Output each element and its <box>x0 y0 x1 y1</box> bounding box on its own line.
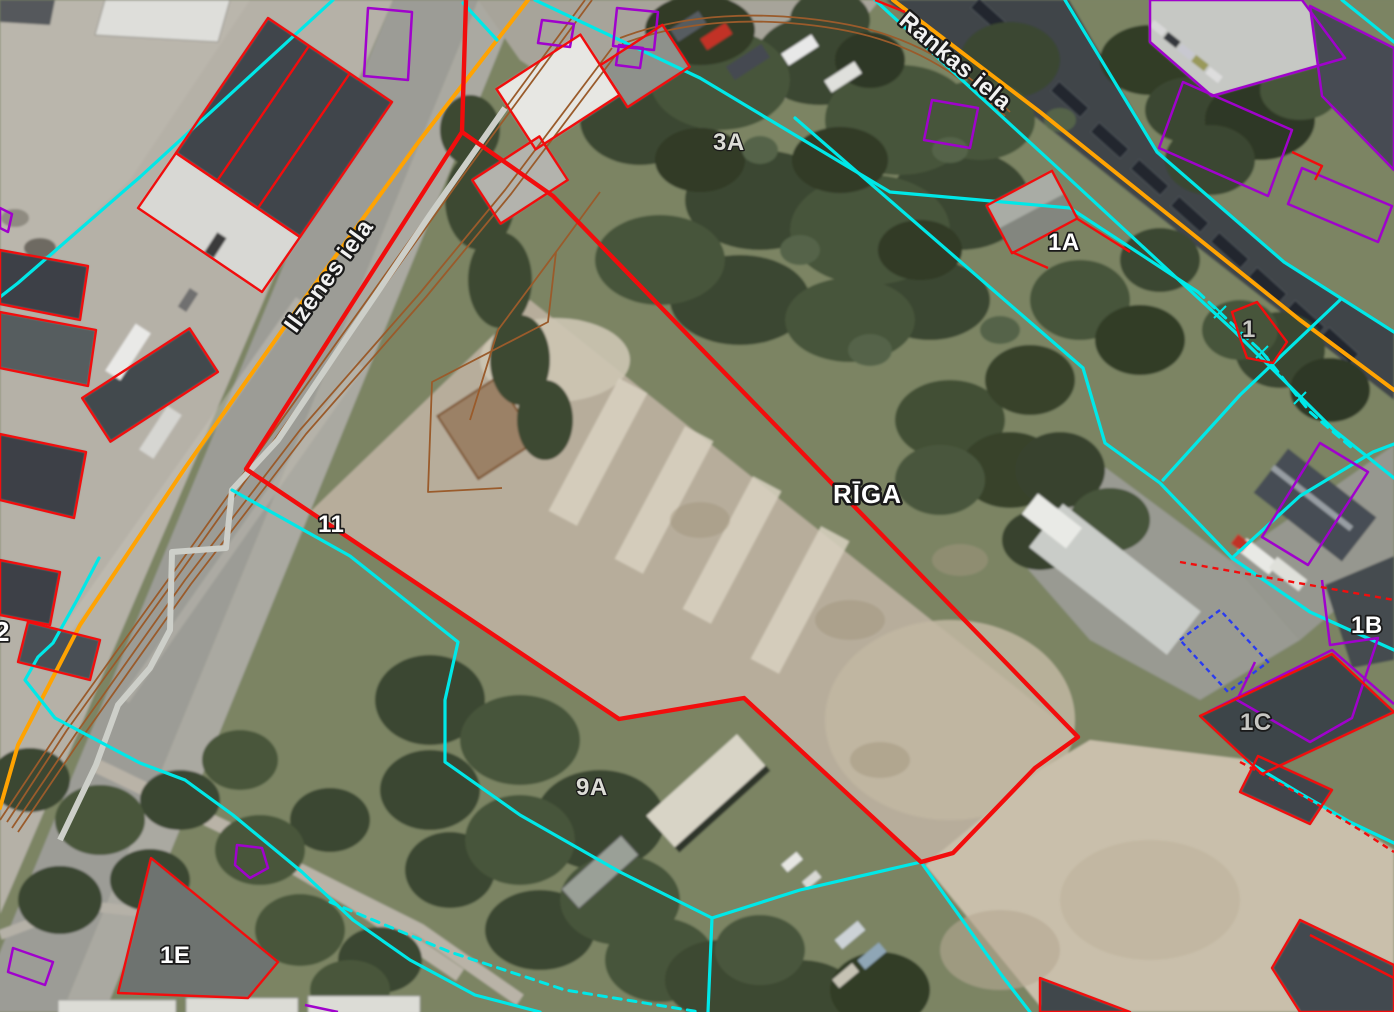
parcel-label-1a: 1A <box>1048 229 1080 256</box>
map-canvas[interactable]: Rankas iela Ilzenes iela RĪGA 3A 1A 1 11… <box>0 0 1394 1012</box>
parcel-label-1: 1 <box>1242 316 1256 343</box>
parcel-label-2: 2 <box>0 616 10 647</box>
city-label-riga: RĪGA <box>833 479 902 509</box>
orthophoto-layer <box>0 0 1394 1012</box>
parcel-label-3a: 3A <box>713 129 745 156</box>
parcel-label-1c: 1C <box>1240 709 1272 736</box>
parcel-label-11: 11 <box>318 511 344 538</box>
parcel-label-9a: 9A <box>576 774 608 801</box>
parcel-label-1b: 1B <box>1351 612 1383 639</box>
parcel-label-1e: 1E <box>160 942 190 969</box>
